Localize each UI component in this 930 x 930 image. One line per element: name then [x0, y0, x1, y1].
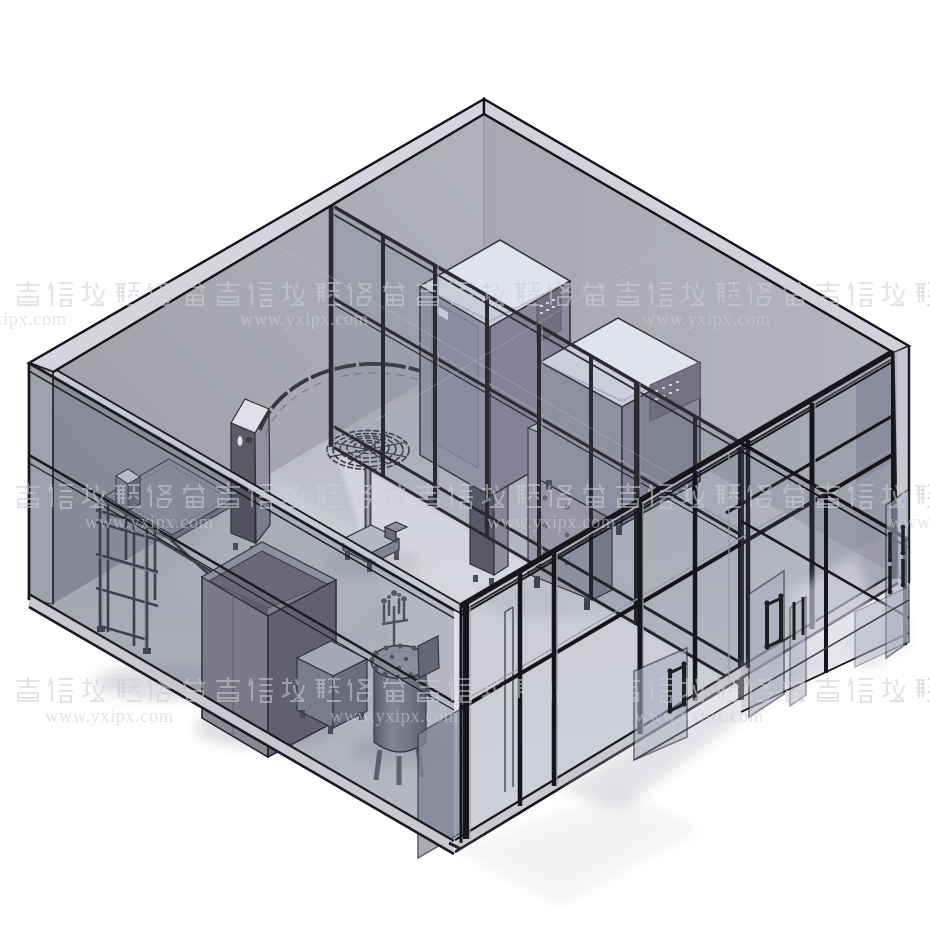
svg-text:www.yxipx.com: www.yxipx.com [330, 707, 459, 727]
svg-text:www.yxipx.com: www.yxipx.com [889, 513, 930, 533]
svg-text:www.yxipx.com: www.yxipx.com [240, 310, 369, 330]
svg-text:www.yxipx.com: www.yxipx.com [487, 513, 616, 533]
svg-text:www.yxipx.com: www.yxipx.com [642, 310, 771, 330]
svg-text:www.yxipx.com: www.yxipx.com [0, 310, 67, 330]
svg-text:www.yxipx.com: www.yxipx.com [85, 513, 214, 533]
svg-text:www.yxipx.com: www.yxipx.com [45, 707, 174, 727]
svg-text:www.yxipx.com: www.yxipx.com [635, 707, 764, 727]
